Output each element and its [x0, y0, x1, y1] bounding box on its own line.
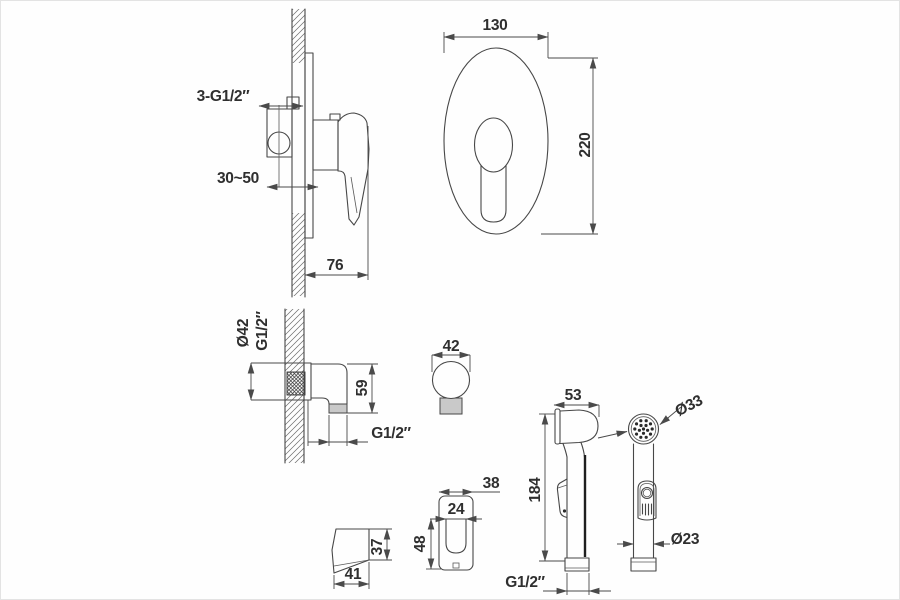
wall-hatch-top — [292, 9, 305, 63]
sprayer-front-view: Ø33 Ø23 — [598, 392, 706, 571]
dim-label-sprayer-length: 184 — [527, 477, 544, 503]
mixer-valve-body — [267, 53, 369, 238]
lever-inner-line — [351, 177, 357, 213]
dim-label-holder-depth: 41 — [345, 566, 362, 583]
escutcheon-plate-side — [305, 53, 313, 238]
lever-cap-front — [475, 118, 513, 172]
trigger-detail-line — [558, 485, 567, 488]
dim-label-inlet-thread: G1/2″ — [254, 310, 271, 350]
elbow-dimensions: Ø42 G1/2″ 59 G1/2″ — [235, 310, 412, 446]
holder-screw-hole — [453, 563, 459, 568]
dim-label-sprayer-thread: G1/2″ — [505, 574, 545, 591]
elbow-side-view: Ø42 G1/2″ 59 G1/2″ — [235, 309, 412, 463]
drawing-svg: 3-G1/2″ 30~50 76 130 220 — [1, 1, 900, 600]
elbow-body — [311, 364, 347, 404]
dim-label-holder-width: 38 — [483, 475, 500, 492]
handle-end-cap-side — [565, 558, 589, 571]
elbow-outlet-stub — [329, 404, 347, 413]
technical-drawing-sheet: 3-G1/2″ 30~50 76 130 220 — [0, 0, 900, 600]
inlet-pipe — [287, 97, 299, 109]
outlet-front-view: 42 — [432, 338, 470, 414]
dim-label-outlet-thread: G1/2″ — [371, 425, 411, 442]
handle-end-cap-front — [631, 558, 656, 571]
dim-label-head-depth: 53 — [565, 387, 582, 404]
dim-label-elbow-height: 59 — [354, 379, 371, 396]
outlet-stub-front — [440, 398, 462, 414]
dim-label-holder-slot-width: 24 — [448, 501, 465, 518]
sprayer-head-side — [560, 410, 598, 444]
mixer-front-view: 130 220 — [444, 17, 598, 234]
dim-label-holder-height-side: 37 — [369, 539, 386, 556]
dim-label-depth-range: 30~50 — [217, 170, 259, 187]
threaded-inlet — [287, 372, 305, 395]
spray-face-side — [555, 409, 560, 444]
sprayer-neck-left — [563, 444, 567, 458]
cartridge-step — [330, 114, 340, 120]
dim-label-plate-height: 220 — [577, 133, 594, 158]
holder-front-dimensions: 38 24 48 — [412, 475, 500, 569]
dim-label-thread: 3-G1/2″ — [197, 88, 251, 105]
holder-slot — [446, 519, 466, 553]
wall-hatch-bottom — [292, 213, 305, 296]
outlet-flange-front — [433, 362, 470, 399]
dim-label-outlet-diameter: 42 — [443, 338, 460, 355]
holder-side-dimensions: 37 41 — [334, 529, 392, 589]
holder-side-view: 37 41 — [332, 529, 392, 589]
dim-label-plate-width: 130 — [483, 17, 508, 34]
dim-label-face-diameter: Ø33 — [672, 392, 706, 420]
dim-label-handle-diameter: Ø23 — [671, 531, 700, 548]
mixer-front-dimensions: 130 220 — [444, 17, 598, 234]
wall-section — [292, 9, 305, 297]
cartridge — [313, 120, 338, 170]
sprayer-neck-right — [581, 443, 585, 458]
sprayer-front-dimensions: Ø33 Ø23 — [598, 392, 706, 548]
dim-label-flange-diameter: Ø42 — [235, 319, 252, 347]
sprayer-side-view: 53 184 G1/2″ — [505, 387, 611, 595]
trigger-pivot-dot — [563, 509, 566, 512]
dim-label-holder-height-front: 48 — [412, 535, 429, 552]
mixer-side-view: 3-G1/2″ 30~50 76 — [197, 9, 369, 297]
sprayer-side-dimensions: 184 G1/2″ — [505, 414, 611, 595]
lever-handle-side — [338, 113, 369, 225]
holder-front-view: 38 24 48 — [412, 475, 500, 570]
dim-label-projection: 76 — [327, 257, 344, 274]
